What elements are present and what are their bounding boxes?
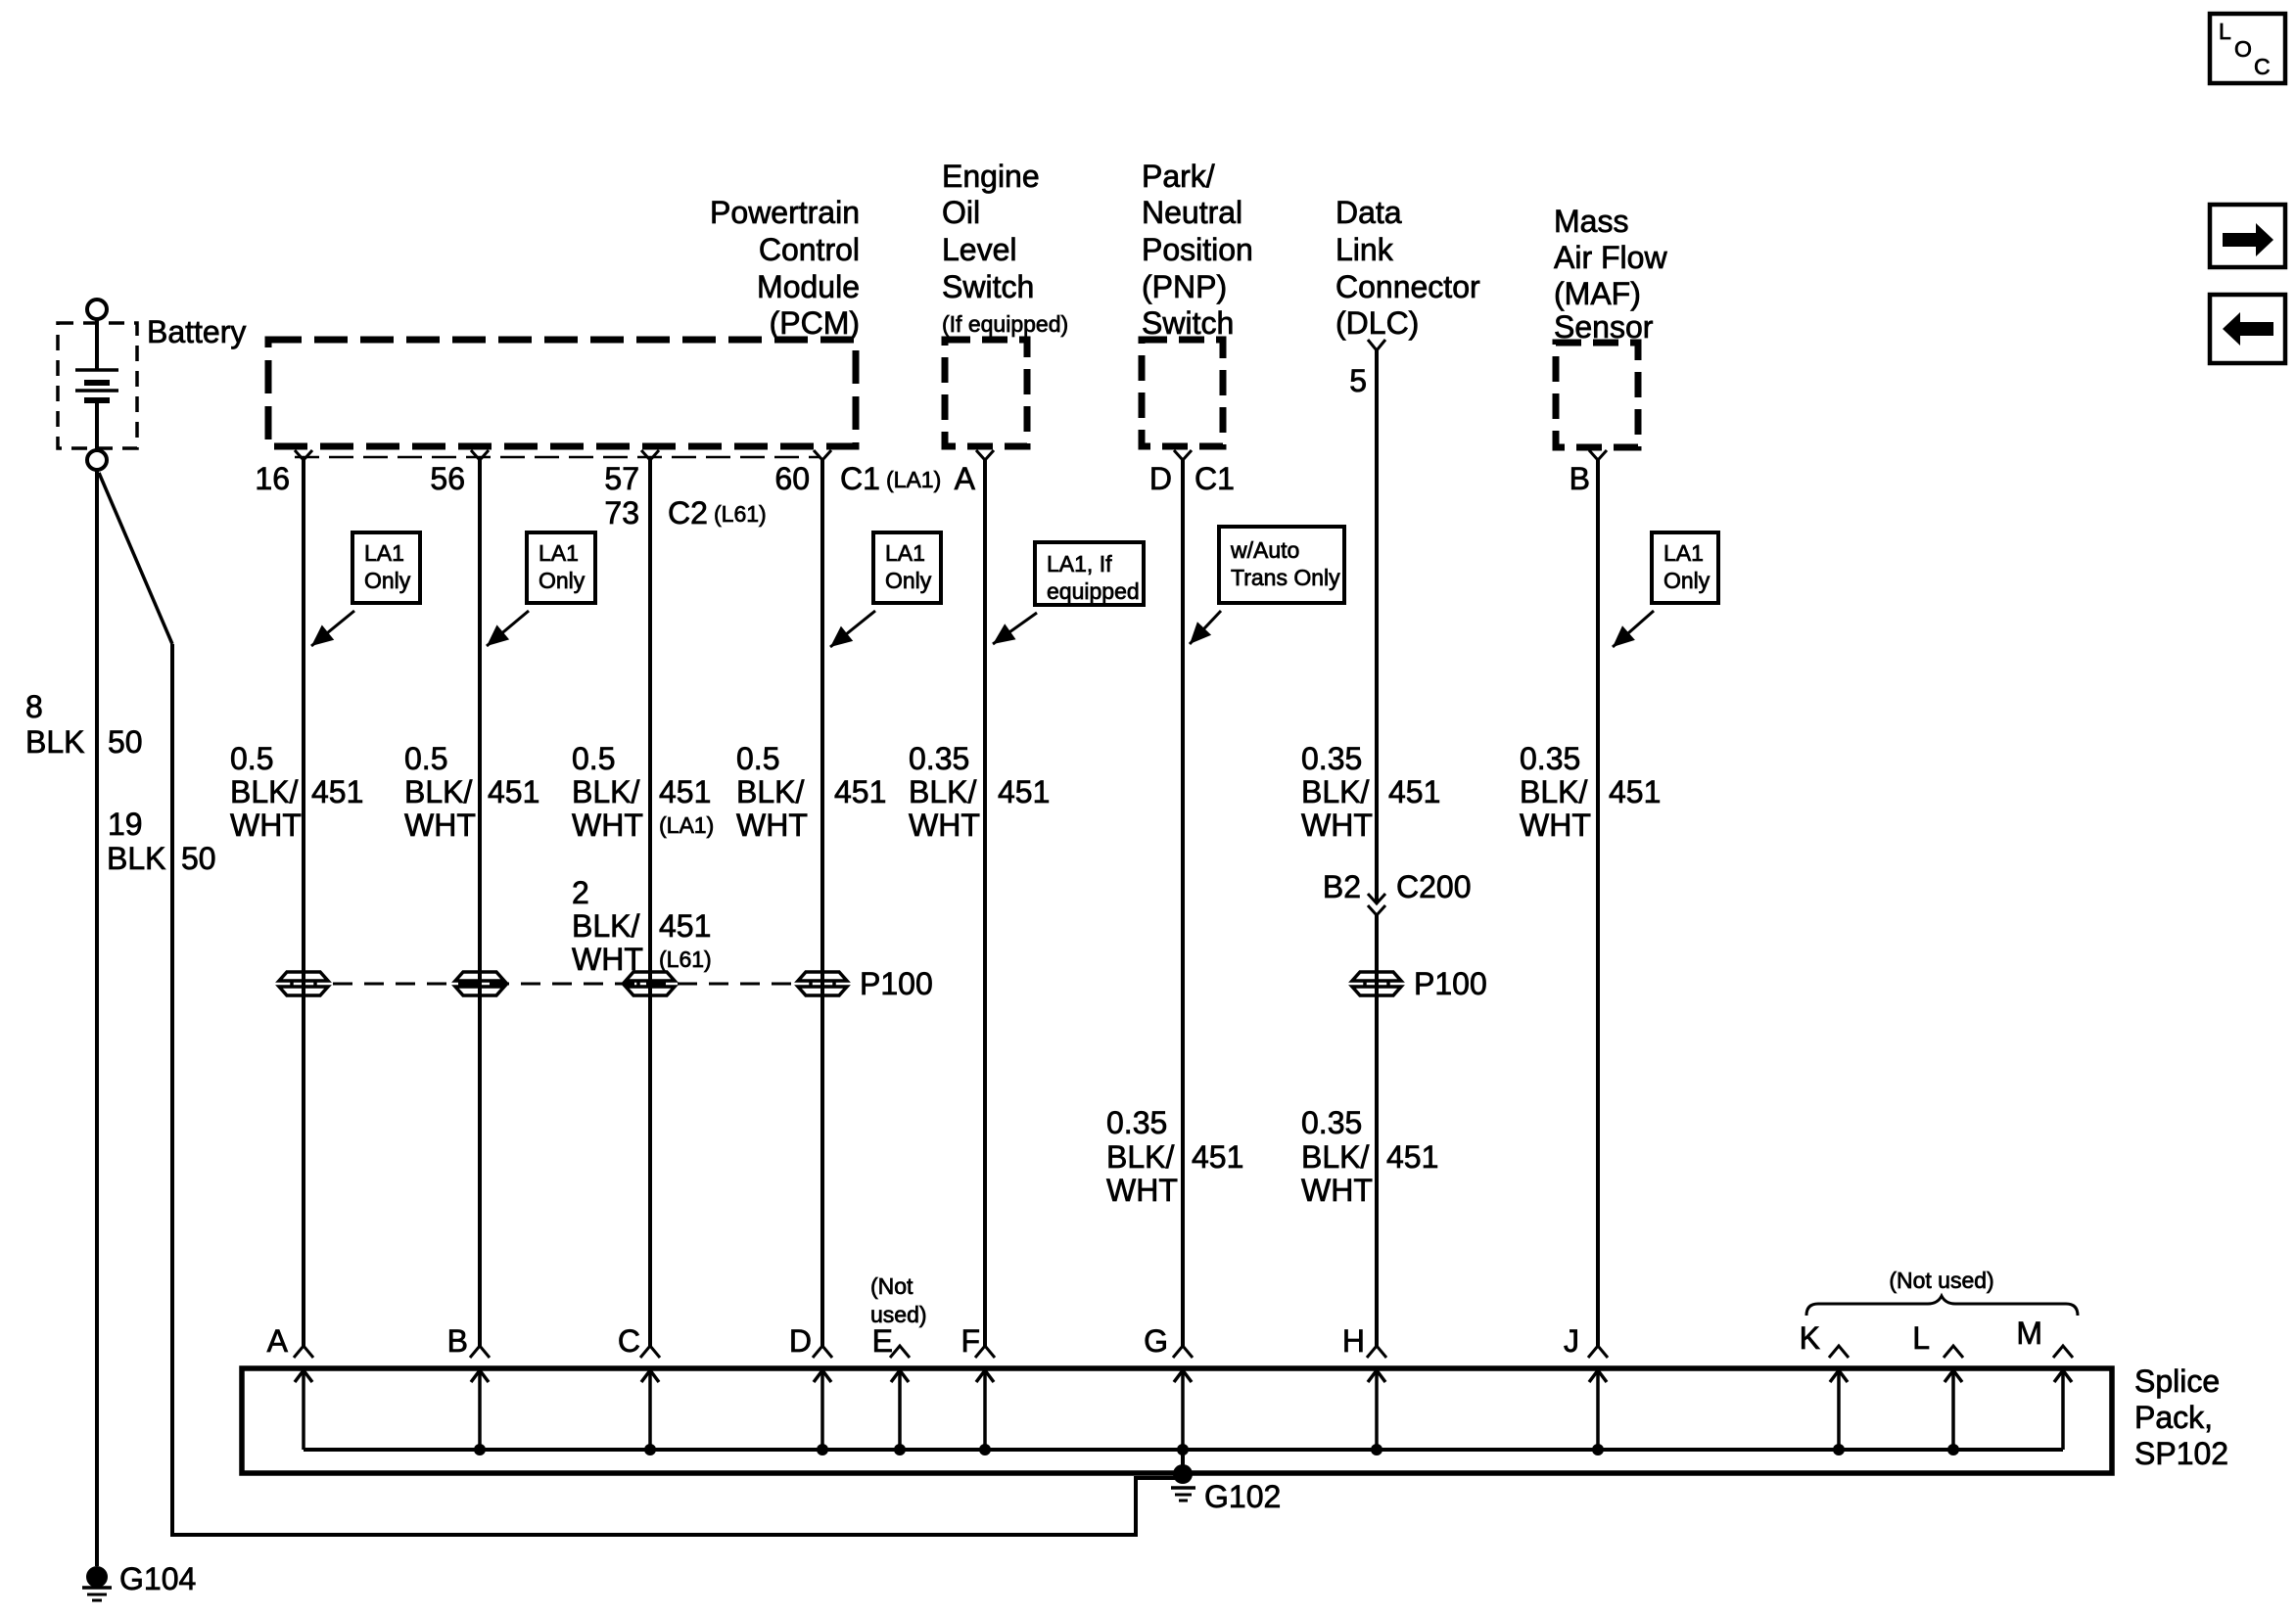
svg-text:LA1: LA1 [539,540,579,566]
svg-text:Link: Link [1335,232,1394,267]
svg-text:LA1, If: LA1, If [1047,551,1112,577]
svg-text:BLK/: BLK/ [1301,1139,1369,1175]
svg-text:P100: P100 [1414,966,1487,1001]
svg-text:C: C [2254,54,2271,79]
svg-text:8: 8 [25,689,43,724]
svg-text:(L61): (L61) [714,501,767,527]
svg-text:16: 16 [255,461,290,496]
svg-text:C1: C1 [1195,461,1235,496]
svg-text:(If equipped): (If equipped) [942,311,1068,337]
svg-text:0.35: 0.35 [1301,741,1362,776]
svg-text:0.5: 0.5 [572,741,615,776]
svg-text:G102: G102 [1204,1479,1281,1514]
svg-text:Level: Level [942,232,1017,267]
svg-text:K: K [1800,1320,1820,1356]
svg-text:Neutral: Neutral [1142,195,1242,230]
svg-text:M: M [2016,1316,2042,1351]
svg-text:451: 451 [1609,774,1661,809]
svg-text:LA1: LA1 [885,540,925,566]
svg-text:BLK/: BLK/ [1520,774,1587,809]
svg-text:BLK: BLK [25,724,84,760]
svg-text:Mass: Mass [1554,204,1628,239]
svg-text:(Not: (Not [870,1273,914,1299]
svg-text:0.5: 0.5 [230,741,273,776]
svg-text:D: D [1149,461,1172,496]
svg-text:57: 57 [604,461,639,496]
svg-text:SP102: SP102 [2134,1436,2228,1471]
svg-text:used): used) [870,1302,927,1327]
svg-text:Only: Only [885,568,932,593]
svg-text:451: 451 [659,908,711,944]
svg-text:WHT: WHT [909,808,980,843]
svg-text:H: H [1342,1323,1365,1359]
svg-text:0.5: 0.5 [404,741,447,776]
svg-text:Position: Position [1142,232,1253,267]
svg-text:Control: Control [759,232,860,267]
svg-text:0.5: 0.5 [736,741,779,776]
svg-text:(DLC): (DLC) [1335,305,1419,341]
svg-text:G104: G104 [119,1561,196,1596]
svg-text:C1: C1 [840,461,880,496]
svg-text:L: L [2219,19,2231,44]
svg-text:Sensor: Sensor [1554,309,1654,345]
svg-text:D: D [789,1323,812,1359]
svg-text:73: 73 [604,495,639,531]
svg-text:(PCM): (PCM) [770,305,860,341]
svg-text:G: G [1144,1323,1168,1359]
svg-text:WHT: WHT [1520,808,1591,843]
svg-text:WHT: WHT [1106,1173,1178,1208]
svg-text:(Not used): (Not used) [1889,1268,1993,1293]
svg-text:0.35: 0.35 [1106,1105,1167,1140]
svg-text:0.35: 0.35 [909,741,969,776]
svg-text:J: J [1564,1323,1579,1359]
svg-text:LA1: LA1 [364,540,404,566]
svg-text:WHT: WHT [572,808,643,843]
svg-text:451: 451 [488,774,539,809]
svg-text:BLK/: BLK/ [1106,1139,1174,1175]
svg-text:E: E [872,1323,893,1359]
svg-text:LA1: LA1 [1663,540,1704,566]
svg-text:A: A [955,461,976,496]
svg-text:C: C [618,1323,640,1359]
svg-text:(LA1): (LA1) [659,812,714,838]
svg-text:50: 50 [181,841,216,876]
svg-text:Data: Data [1335,195,1402,230]
svg-text:60: 60 [774,461,810,496]
svg-text:Only: Only [539,568,586,593]
svg-text:WHT: WHT [1301,1173,1373,1208]
svg-text:WHT: WHT [736,808,808,843]
svg-text:C2: C2 [668,495,708,531]
svg-text:19: 19 [108,807,143,842]
svg-text:equipped: equipped [1047,578,1140,604]
svg-text:Splice: Splice [2134,1363,2220,1399]
svg-text:(PNP): (PNP) [1142,269,1227,304]
svg-text:L: L [1912,1320,1930,1356]
svg-text:B: B [1570,461,1590,496]
svg-text:0.35: 0.35 [1301,1105,1362,1140]
svg-text:451: 451 [1192,1139,1243,1175]
svg-text:Engine: Engine [942,159,1040,194]
svg-text:(MAF): (MAF) [1554,276,1641,311]
svg-text:BLK/: BLK/ [736,774,804,809]
svg-text:WHT: WHT [404,808,476,843]
svg-text:Park/: Park/ [1142,159,1215,194]
svg-text:Pack,: Pack, [2134,1400,2213,1435]
svg-text:Only: Only [1663,568,1710,593]
svg-text:451: 451 [1388,774,1440,809]
svg-text:B: B [447,1323,468,1359]
svg-text:Connector: Connector [1335,269,1480,304]
svg-text:Battery: Battery [147,314,246,349]
svg-text:0.35: 0.35 [1520,741,1580,776]
svg-text:BLK/: BLK/ [230,774,298,809]
svg-text:451: 451 [998,774,1050,809]
svg-text:BLK/: BLK/ [404,774,472,809]
svg-text:Oil: Oil [942,195,980,230]
svg-text:BLK/: BLK/ [572,774,639,809]
svg-text:56: 56 [430,461,465,496]
svg-text:BLK: BLK [107,841,165,876]
svg-text:Switch: Switch [1142,305,1234,341]
svg-text:Trans Only: Trans Only [1231,565,1340,590]
svg-text:451: 451 [659,774,711,809]
svg-text:WHT: WHT [230,808,302,843]
svg-text:Air Flow: Air Flow [1554,240,1667,275]
svg-text:C200: C200 [1396,869,1472,904]
svg-text:Module: Module [757,269,860,304]
svg-text:(L61): (L61) [659,947,712,972]
svg-text:2: 2 [572,875,589,910]
svg-text:50: 50 [108,724,143,760]
svg-text:P100: P100 [860,966,933,1001]
svg-text:451: 451 [1386,1139,1438,1175]
svg-text:Switch: Switch [942,269,1034,304]
svg-text:w/Auto: w/Auto [1230,537,1299,563]
svg-text:5: 5 [1349,363,1367,398]
svg-text:A: A [267,1323,289,1359]
svg-text:B2: B2 [1323,869,1361,904]
svg-text:BLK/: BLK/ [909,774,976,809]
svg-text:Only: Only [364,568,411,593]
svg-text:Powertrain: Powertrain [710,195,860,230]
svg-text:BLK/: BLK/ [1301,774,1369,809]
svg-text:BLK/: BLK/ [572,908,639,944]
svg-text:(LA1): (LA1) [886,467,941,492]
svg-text:O: O [2234,36,2252,62]
svg-text:451: 451 [834,774,886,809]
svg-text:WHT: WHT [1301,808,1373,843]
svg-text:451: 451 [311,774,363,809]
